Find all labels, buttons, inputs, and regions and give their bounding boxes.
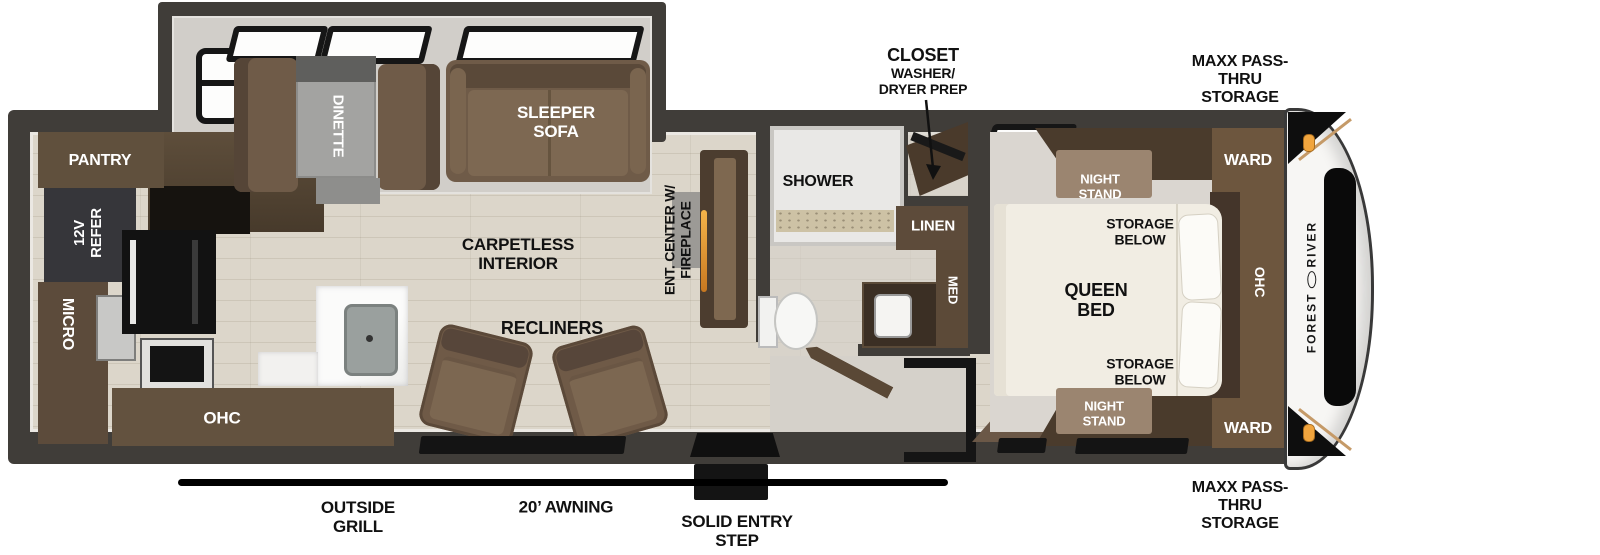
cap-window-decal <box>1324 168 1356 406</box>
range-cooktop <box>122 230 216 334</box>
outside-grill-label: OUTSIDE GRILL <box>306 498 411 536</box>
micro-label: MICRO <box>58 298 76 350</box>
step-well <box>904 358 976 462</box>
kitchen-sink <box>344 304 398 376</box>
closet-label: CLOSET <box>887 45 959 65</box>
entry-door <box>690 433 780 457</box>
kitchen-counter-dark <box>150 186 250 234</box>
forest-river-logo-icon <box>1308 272 1317 289</box>
dinette-bench-right <box>378 64 440 190</box>
bath-vanity <box>862 282 940 348</box>
closet-sub1-label: WASHER/ <box>891 66 955 82</box>
floorplan-canvas: FOREST RIVER PANTRY 12V REFER MICRO OHC … <box>0 0 1600 555</box>
pantry-label: PANTRY <box>69 152 132 170</box>
ent-center-label: ENT. CENTER W/ FIREPLACE <box>662 184 693 296</box>
refer-label: 12V REFER <box>72 201 106 265</box>
ward-top-label: WARD <box>1224 152 1272 170</box>
closet-callout-arrow <box>898 96 968 182</box>
maxx-storage-bottom-label: MAXX PASS-THRU STORAGE <box>1178 479 1303 533</box>
dinette-label: DINETTE <box>329 95 346 158</box>
queen-bed-label: QUEEN BED <box>1049 280 1144 320</box>
awning-line <box>178 479 948 486</box>
marker-light-bottom <box>1303 424 1315 442</box>
fireplace-glow <box>701 210 707 292</box>
linen-label: LINEN <box>911 219 955 236</box>
brand-word-forest: FOREST <box>1305 293 1318 354</box>
brand-logo: FOREST RIVER <box>1305 221 1318 353</box>
dinette-bench-left <box>234 58 298 192</box>
marker-light-top <box>1303 134 1315 152</box>
awning-label: 20’ AWNING <box>519 497 614 516</box>
dinette-pedestal <box>316 178 380 204</box>
bedroom-ohc-label: OHC <box>1251 267 1267 298</box>
maxx-storage-top-label: MAXX PASS-THRU STORAGE <box>1178 53 1303 107</box>
ent-center-cabinet <box>700 150 748 328</box>
bath-bottom-window <box>997 438 1047 453</box>
kitchen-ohc-cabinet <box>112 388 394 446</box>
sleeper-sofa-label: SLEEPER SOFA <box>501 103 611 141</box>
storage-below-bottom-label: STORAGE BELOW <box>1093 356 1188 387</box>
oven-appliance <box>140 338 214 390</box>
closet-wall-horizontal <box>896 196 970 206</box>
bedroom-bottom-window <box>1075 438 1189 454</box>
kitchen-counter-return <box>258 352 318 386</box>
nightstand-bottom-label: NIGHT STAND <box>1070 399 1138 428</box>
med-label: MED <box>945 276 960 304</box>
kitchen-ohc-label: OHC <box>203 408 240 427</box>
toilet-bowl <box>774 292 818 350</box>
entry-step-label: SOLID ENTRY STEP <box>662 512 812 550</box>
bath-bedroom-wall <box>968 114 990 354</box>
living-bottom-window <box>419 436 627 454</box>
storage-below-top-label: STORAGE BELOW <box>1093 216 1188 247</box>
recliners-label: RECLINERS <box>501 318 603 338</box>
ward-bottom-label: WARD <box>1224 420 1272 438</box>
sofa-window <box>455 26 644 64</box>
carpetless-interior-label: CARPETLESS INTERIOR <box>446 235 591 273</box>
brand-word-river: RIVER <box>1305 221 1318 268</box>
nightstand-top-label: NIGHT STAND <box>1066 172 1134 201</box>
shower-label: SHOWER <box>783 173 854 191</box>
